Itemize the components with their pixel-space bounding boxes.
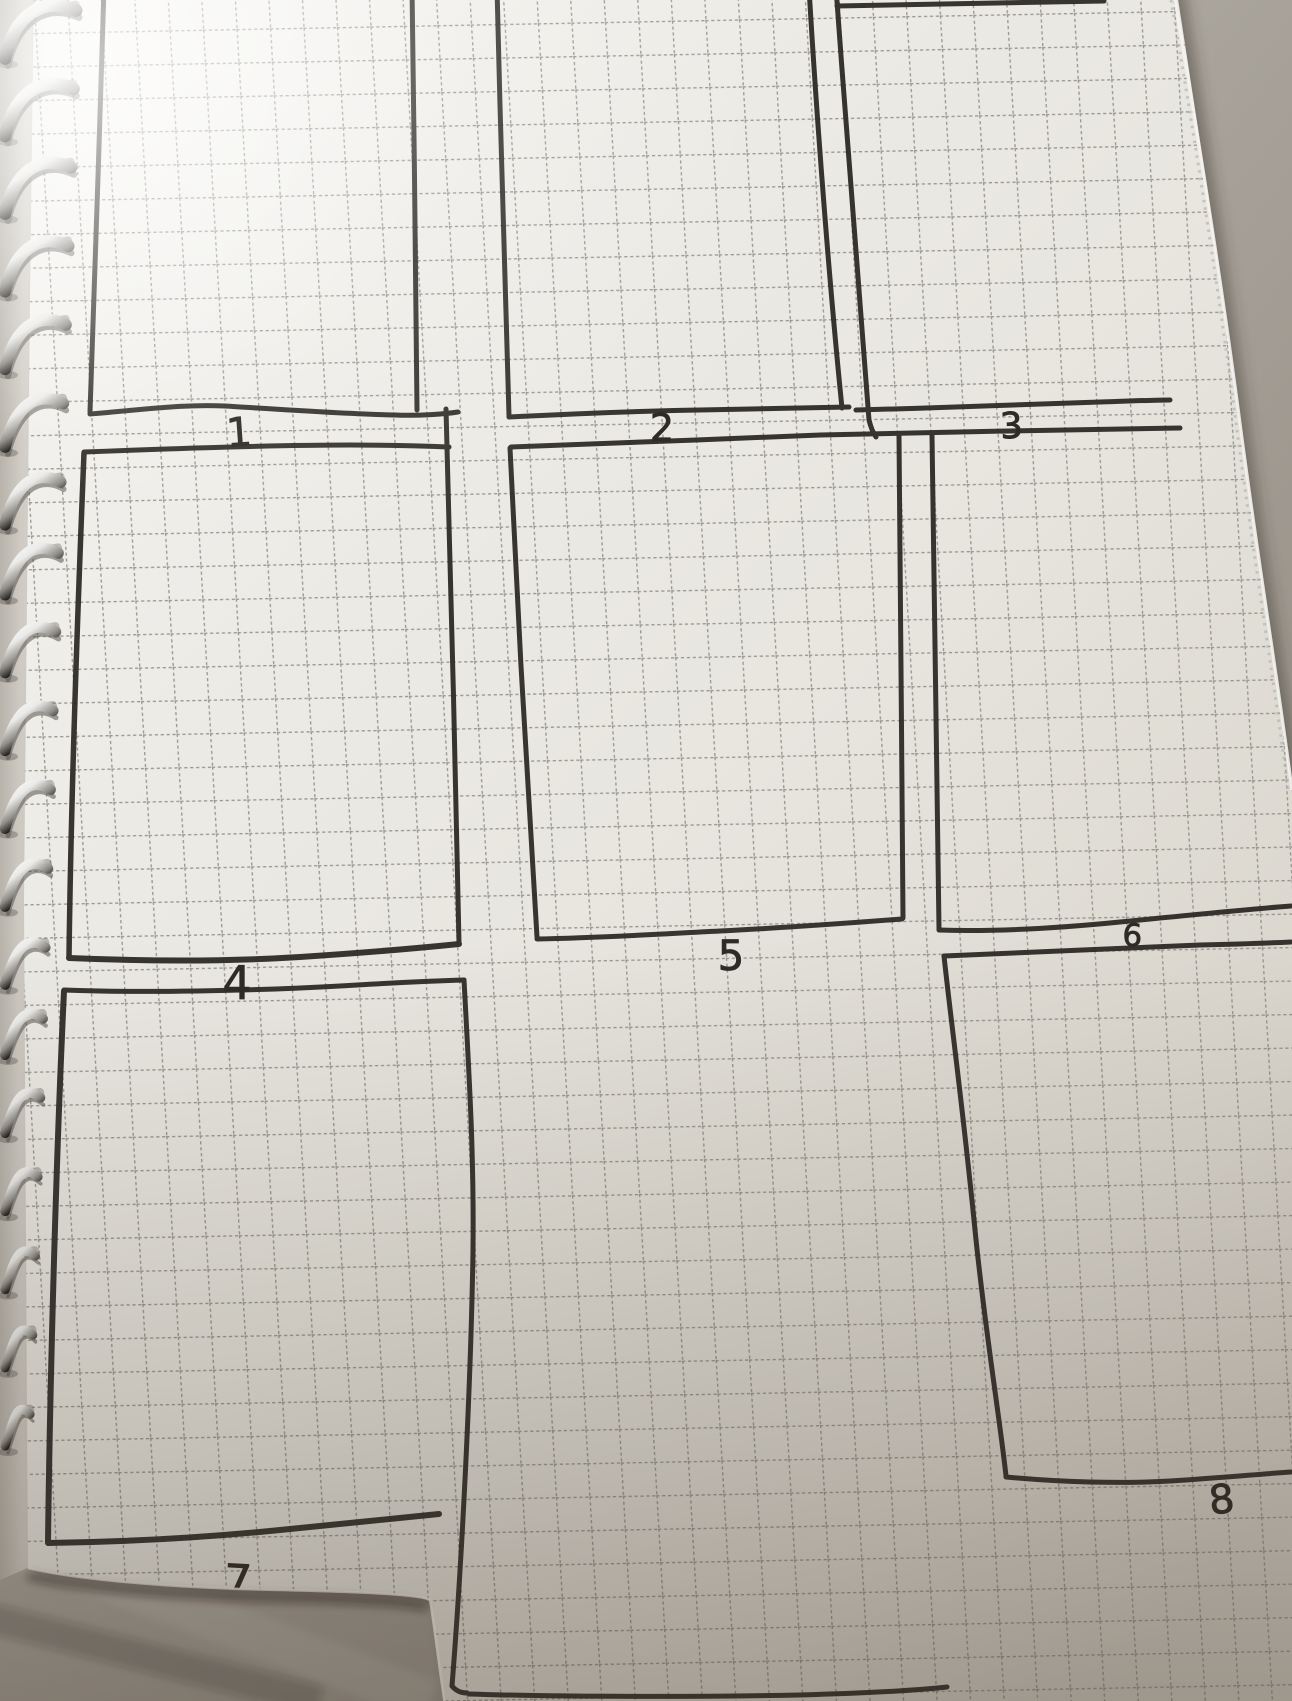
panel-label-4: 4 [222,956,251,1010]
notebook-photo: 1 2 3 4 5 6 7 8 [0,0,1292,1701]
panel-label-8: 8 [1207,1476,1237,1524]
panel-label-6: 6 [1122,918,1143,955]
grid-lines [0,0,1292,1701]
panel-label-5: 5 [718,931,745,980]
panel-label-2: 2 [650,406,674,450]
panel-label-3: 3 [999,405,1024,447]
photo-frame: 1 2 3 4 5 6 7 8 [0,0,1292,1701]
panel-label-1: 1 [225,409,254,457]
